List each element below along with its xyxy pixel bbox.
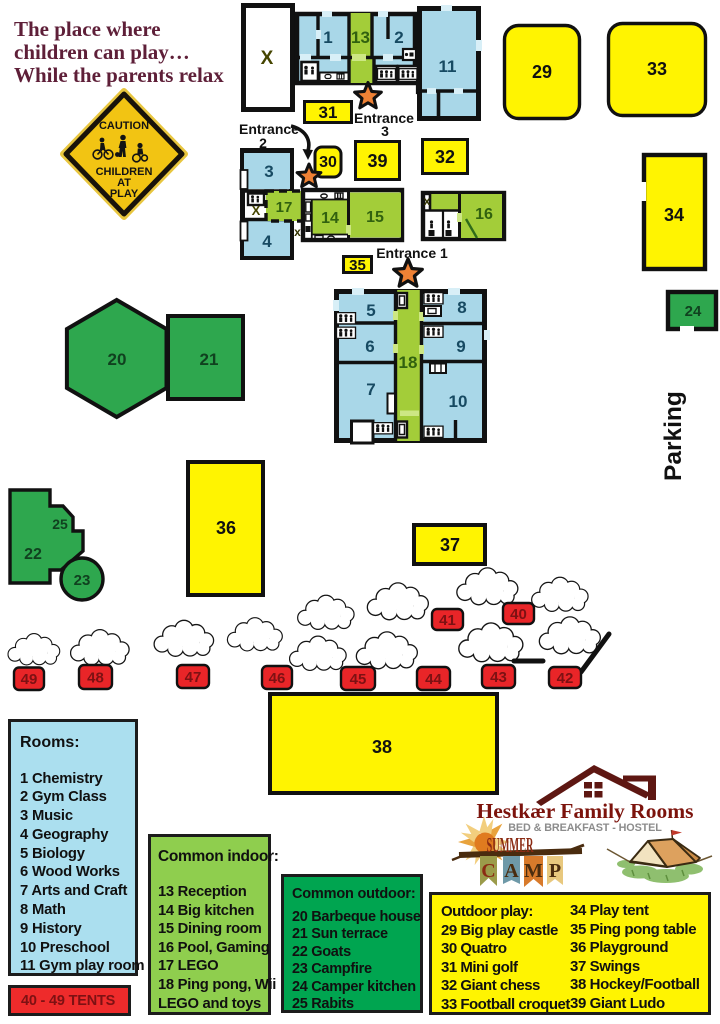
svg-text:33: 33: [647, 59, 667, 79]
svg-text:11: 11: [439, 57, 457, 76]
svg-text:14: 14: [321, 210, 339, 227]
svg-text:47: 47: [185, 669, 202, 686]
svg-text:Parking: Parking: [660, 391, 687, 481]
svg-text:35: 35: [349, 257, 366, 274]
svg-text:Entrance: Entrance: [239, 121, 299, 137]
svg-text:30: 30: [319, 154, 337, 171]
svg-text:9: 9: [456, 337, 465, 356]
svg-text:x: x: [294, 225, 301, 239]
svg-text:5: 5: [366, 301, 375, 320]
svg-text:3: 3: [381, 123, 389, 139]
svg-text:23: 23: [74, 572, 91, 589]
svg-text:44: 44: [425, 671, 442, 688]
svg-text:24: 24: [685, 303, 702, 320]
svg-text:SUMMER: SUMMER: [487, 833, 534, 857]
svg-text:P: P: [549, 860, 561, 882]
svg-text:Entrance 1: Entrance 1: [376, 245, 448, 261]
svg-text:43: 43: [490, 669, 507, 686]
svg-text:17: 17: [276, 199, 293, 216]
svg-text:48: 48: [87, 670, 104, 687]
svg-text:42: 42: [557, 670, 574, 687]
svg-text:45: 45: [350, 671, 367, 688]
svg-text:22: 22: [24, 546, 42, 563]
svg-text:15: 15: [366, 209, 384, 226]
svg-text:46: 46: [269, 670, 286, 687]
svg-text:34: 34: [664, 205, 684, 225]
svg-text:49: 49: [21, 671, 38, 688]
svg-text:18: 18: [399, 353, 418, 372]
svg-text:4: 4: [262, 232, 272, 251]
svg-text:36: 36: [216, 518, 236, 538]
svg-text:C: C: [481, 860, 495, 882]
svg-text:X: X: [261, 48, 274, 69]
svg-text:2: 2: [394, 28, 403, 47]
svg-text:10: 10: [449, 392, 468, 411]
svg-text:8: 8: [457, 298, 466, 317]
svg-text:32: 32: [435, 147, 455, 167]
svg-text:A: A: [504, 860, 519, 882]
svg-text:20: 20: [108, 350, 127, 369]
svg-text:X: X: [252, 203, 261, 218]
svg-text:M: M: [524, 860, 543, 882]
svg-text:1: 1: [323, 28, 332, 47]
svg-text:16: 16: [475, 206, 493, 223]
svg-text:41: 41: [439, 612, 456, 629]
svg-text:31: 31: [319, 103, 338, 122]
svg-text:7: 7: [366, 380, 375, 399]
svg-text:25: 25: [52, 516, 68, 532]
svg-text:3: 3: [264, 162, 273, 181]
svg-text:37: 37: [440, 535, 460, 555]
svg-text:40: 40: [510, 606, 527, 623]
svg-text:x: x: [424, 194, 431, 208]
svg-text:6: 6: [365, 337, 374, 356]
svg-text:38: 38: [372, 737, 392, 757]
svg-text:21: 21: [200, 350, 219, 369]
svg-text:PLAY: PLAY: [110, 188, 139, 200]
svg-text:13: 13: [351, 28, 370, 47]
svg-text:39: 39: [367, 151, 387, 171]
svg-text:CAUTION: CAUTION: [99, 120, 149, 132]
svg-text:29: 29: [532, 62, 552, 82]
